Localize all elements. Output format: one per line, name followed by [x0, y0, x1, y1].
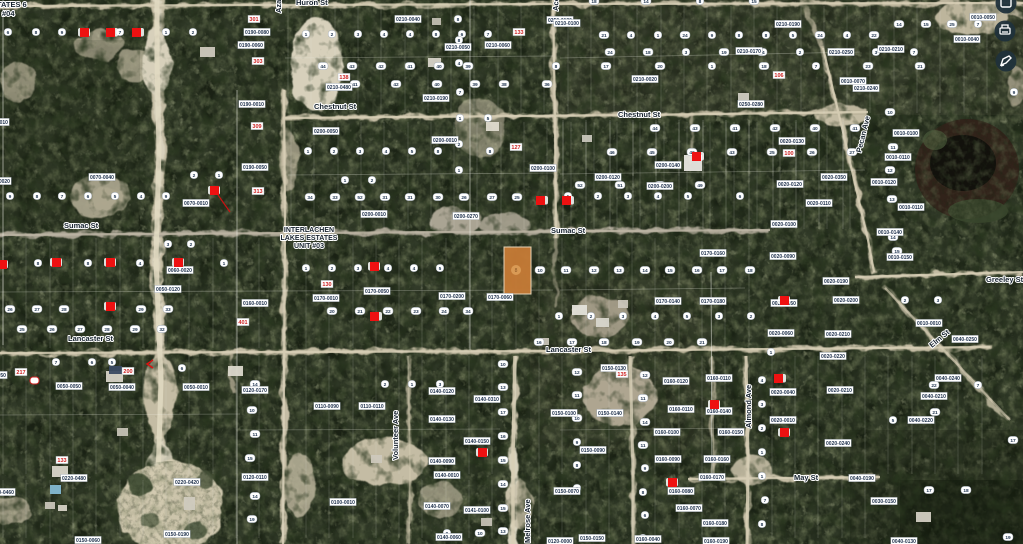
- svg-text:18: 18: [601, 340, 607, 346]
- svg-text:Almond Ave: Almond Ave: [744, 385, 753, 428]
- svg-text:0210-0190: 0210-0190: [776, 22, 800, 28]
- svg-text:Volunteer Ave: Volunteer Ave: [391, 411, 400, 460]
- svg-text:0170-0050: 0170-0050: [365, 289, 389, 295]
- svg-text:0120-0110: 0120-0110: [243, 475, 267, 481]
- svg-text:5: 5: [111, 360, 114, 366]
- svg-text:0210-0050: 0210-0050: [446, 45, 470, 51]
- svg-text:0040-0220: 0040-0220: [909, 418, 933, 424]
- svg-text:0160-0190: 0160-0190: [704, 539, 728, 544]
- svg-text:2: 2: [192, 30, 195, 36]
- svg-text:5: 5: [439, 266, 442, 272]
- svg-text:6: 6: [739, 194, 742, 200]
- svg-text:Chestnut St: Chestnut St: [618, 110, 661, 119]
- svg-text:Sumac St: Sumac St: [551, 226, 586, 235]
- svg-text:11: 11: [563, 268, 568, 274]
- svg-text:7: 7: [764, 498, 767, 504]
- svg-text:0040-0240: 0040-0240: [936, 376, 960, 382]
- svg-text:4: 4: [140, 194, 143, 200]
- svg-text:Acorn Av: Acorn Av: [551, 0, 561, 11]
- svg-text:1: 1: [558, 314, 561, 320]
- svg-text:27: 27: [34, 307, 40, 313]
- svg-text:5: 5: [411, 149, 414, 155]
- svg-text:5: 5: [792, 33, 795, 39]
- svg-text:3: 3: [761, 402, 764, 408]
- svg-text:8: 8: [761, 522, 764, 528]
- svg-text:313: 313: [253, 189, 262, 195]
- svg-text:0020-0210: 0020-0210: [826, 332, 850, 338]
- svg-text:2: 2: [193, 173, 196, 179]
- svg-text:25: 25: [769, 150, 775, 156]
- svg-text:200: 200: [123, 369, 132, 375]
- svg-text:38: 38: [501, 82, 507, 88]
- svg-text:4: 4: [409, 32, 412, 38]
- svg-text:106: 106: [774, 73, 783, 79]
- svg-text:8: 8: [87, 261, 90, 267]
- svg-text:1: 1: [657, 33, 660, 39]
- svg-text:0050-0050: 0050-0050: [0, 373, 6, 379]
- svg-text:13: 13: [500, 385, 506, 391]
- svg-text:0160-0150: 0160-0150: [719, 430, 743, 436]
- svg-text:8: 8: [457, 17, 460, 23]
- svg-text:Melrose Ave: Melrose Ave: [523, 499, 532, 543]
- svg-text:17: 17: [719, 268, 725, 274]
- svg-text:0010-0070: 0010-0070: [841, 79, 865, 85]
- svg-text:0200-0200: 0200-0200: [648, 184, 672, 190]
- svg-text:4: 4: [630, 33, 633, 39]
- svg-text:4: 4: [761, 378, 764, 384]
- svg-text:0020-0210: 0020-0210: [828, 388, 852, 394]
- svg-text:0150-0060: 0150-0060: [76, 538, 100, 544]
- svg-text:5: 5: [892, 418, 895, 424]
- svg-text:0070-0040: 0070-0040: [90, 175, 114, 181]
- svg-text:0070-0010: 0070-0010: [184, 201, 208, 207]
- svg-text:1: 1: [459, 116, 462, 122]
- svg-text:23: 23: [413, 309, 419, 315]
- svg-text:21: 21: [601, 33, 607, 39]
- svg-text:26: 26: [7, 307, 13, 313]
- svg-text:32: 32: [159, 327, 165, 333]
- svg-text:0210-0250: 0210-0250: [829, 50, 853, 56]
- svg-text:7: 7: [119, 30, 122, 36]
- svg-text:24: 24: [817, 33, 823, 39]
- svg-text:0100-0010: 0100-0010: [0, 120, 8, 126]
- svg-text:8: 8: [435, 32, 438, 38]
- svg-text:18: 18: [645, 50, 651, 56]
- svg-text:24: 24: [682, 33, 688, 39]
- svg-text:Huron St: Huron St: [296, 0, 328, 7]
- svg-text:0020-0350: 0020-0350: [822, 175, 846, 181]
- svg-text:STATES 6: STATES 6: [0, 0, 27, 9]
- svg-text:2: 2: [904, 298, 907, 304]
- svg-text:0150-0150: 0150-0150: [580, 536, 604, 542]
- svg-text:0050-0120: 0050-0120: [156, 287, 180, 293]
- svg-text:0210-0020: 0210-0020: [633, 77, 657, 83]
- svg-text:2: 2: [190, 242, 193, 248]
- svg-text:Greeley St: Greeley St: [986, 275, 1023, 284]
- svg-text:1: 1: [223, 261, 226, 267]
- svg-text:138: 138: [339, 75, 348, 81]
- svg-text:0200-0100: 0200-0100: [531, 166, 555, 172]
- svg-text:51: 51: [617, 183, 623, 189]
- svg-text:0010-0110: 0010-0110: [886, 155, 910, 161]
- svg-text:2: 2: [371, 178, 374, 184]
- svg-text:42: 42: [378, 64, 384, 70]
- svg-text:1: 1: [711, 64, 714, 70]
- svg-text:0210-0170: 0210-0170: [737, 49, 761, 55]
- svg-text:41: 41: [352, 82, 358, 88]
- svg-text:16: 16: [500, 434, 506, 440]
- svg-text:133: 133: [514, 30, 523, 36]
- svg-text:301: 301: [249, 17, 258, 23]
- svg-text:0010-0100: 0010-0100: [894, 131, 918, 137]
- svg-text:0040-0210: 0040-0210: [922, 394, 946, 400]
- svg-text:Azalea Av: Azalea Av: [274, 0, 283, 13]
- svg-text:13: 13: [500, 529, 506, 535]
- svg-text:0140-0070: 0140-0070: [425, 504, 449, 510]
- svg-text:0150-0140: 0150-0140: [598, 411, 622, 417]
- svg-text:0040-0250: 0040-0250: [953, 337, 977, 343]
- svg-text:15: 15: [923, 22, 929, 28]
- svg-text:0160-0070: 0160-0070: [677, 506, 701, 512]
- svg-text:5: 5: [487, 116, 490, 122]
- svg-text:1: 1: [411, 382, 414, 388]
- svg-text:29: 29: [138, 307, 144, 313]
- svg-text:12: 12: [887, 168, 893, 174]
- svg-text:0010-0150: 0010-0150: [888, 255, 912, 261]
- svg-text:15: 15: [500, 458, 506, 464]
- svg-text:UNIT #03: UNIT #03: [294, 243, 324, 250]
- svg-text:26: 26: [49, 327, 55, 333]
- svg-text:17: 17: [926, 488, 932, 494]
- svg-text:0140-0090: 0140-0090: [430, 459, 454, 465]
- svg-text:43: 43: [692, 126, 698, 132]
- svg-text:29: 29: [132, 327, 138, 333]
- svg-text:2: 2: [597, 194, 600, 200]
- svg-text:0210-0190: 0210-0190: [424, 96, 448, 102]
- svg-text:21: 21: [699, 340, 705, 346]
- svg-text:5: 5: [686, 314, 689, 320]
- svg-text:31: 31: [407, 195, 413, 201]
- svg-text:1: 1: [307, 149, 310, 155]
- svg-text:20: 20: [666, 340, 672, 346]
- svg-text:0170-0140: 0170-0140: [656, 299, 680, 305]
- svg-text:22: 22: [385, 309, 391, 315]
- svg-text:10: 10: [249, 408, 255, 414]
- svg-text:14: 14: [642, 420, 648, 426]
- svg-text:44: 44: [652, 126, 658, 132]
- svg-text:0010-0110: 0010-0110: [899, 205, 923, 211]
- svg-text:18: 18: [761, 64, 767, 70]
- svg-text:Lancaster St: Lancaster St: [68, 334, 114, 343]
- svg-text:0160-0110: 0160-0110: [669, 407, 693, 413]
- svg-text:0060-0020: 0060-0020: [168, 268, 192, 274]
- svg-text:1: 1: [344, 178, 347, 184]
- svg-text:100: 100: [784, 151, 793, 157]
- svg-text:0030-0150: 0030-0150: [872, 499, 896, 505]
- svg-text:8: 8: [515, 268, 518, 274]
- svg-text:22: 22: [931, 383, 937, 389]
- svg-text:0100-0010: 0100-0010: [331, 500, 355, 506]
- svg-text:9: 9: [165, 194, 168, 200]
- svg-text:8: 8: [458, 38, 461, 44]
- svg-text:0170-0060: 0170-0060: [488, 295, 512, 301]
- svg-text:11: 11: [574, 393, 579, 399]
- svg-text:10: 10: [500, 362, 506, 368]
- svg-text:41: 41: [732, 126, 738, 132]
- svg-text:6: 6: [181, 366, 184, 372]
- svg-text:2: 2: [750, 314, 753, 320]
- svg-text:3: 3: [627, 194, 630, 200]
- svg-text:13: 13: [616, 268, 622, 274]
- svg-text:40: 40: [436, 64, 442, 70]
- svg-text:1: 1: [165, 30, 168, 36]
- svg-text:9: 9: [61, 30, 64, 36]
- svg-text:0020-0200: 0020-0200: [834, 298, 858, 304]
- svg-text:3: 3: [439, 382, 442, 388]
- svg-text:8: 8: [36, 194, 39, 200]
- svg-text:40: 40: [812, 126, 818, 132]
- svg-text:2: 2: [331, 266, 334, 272]
- svg-text:3: 3: [357, 32, 360, 38]
- svg-text:34: 34: [307, 195, 313, 201]
- svg-text:0010-0050: 0010-0050: [971, 15, 995, 21]
- svg-text:49: 49: [697, 183, 703, 189]
- svg-text:8: 8: [489, 149, 492, 155]
- svg-text:0160-0080: 0160-0080: [669, 489, 693, 495]
- svg-text:22: 22: [871, 33, 877, 39]
- svg-text:0040-0130: 0040-0130: [892, 539, 916, 544]
- svg-text:9: 9: [711, 33, 714, 39]
- svg-text:41: 41: [852, 126, 858, 132]
- svg-text:8: 8: [555, 64, 558, 70]
- svg-text:13: 13: [889, 197, 895, 203]
- svg-text:4: 4: [383, 32, 386, 38]
- svg-text:42: 42: [393, 82, 399, 88]
- svg-text:7: 7: [61, 194, 64, 200]
- svg-text:0210-0100: 0210-0100: [555, 21, 579, 27]
- svg-text:4: 4: [458, 61, 461, 67]
- svg-text:27: 27: [489, 195, 495, 201]
- svg-text:2: 2: [333, 149, 336, 155]
- svg-text:18: 18: [747, 268, 753, 274]
- svg-text:0200-0120: 0200-0120: [596, 175, 620, 181]
- svg-text:5: 5: [687, 194, 690, 200]
- svg-text:0010-0040: 0010-0040: [955, 37, 979, 43]
- svg-text:2: 2: [799, 50, 802, 56]
- svg-text:41: 41: [407, 64, 413, 70]
- svg-text:0200-0010: 0200-0010: [362, 212, 386, 218]
- svg-text:2: 2: [761, 426, 764, 432]
- svg-text:0110-0090: 0110-0090: [315, 404, 339, 410]
- svg-text:0160-0010: 0160-0010: [243, 301, 267, 307]
- svg-text:15: 15: [247, 456, 253, 462]
- svg-text:0140-0060: 0140-0060: [437, 535, 461, 541]
- svg-text:0020-0100: 0020-0100: [772, 222, 796, 228]
- svg-text:0020-0060: 0020-0060: [769, 331, 793, 337]
- svg-text:0200-0140: 0200-0140: [656, 163, 680, 169]
- svg-text:23: 23: [865, 64, 871, 70]
- svg-text:8: 8: [642, 490, 645, 496]
- svg-text:LAKES ESTATES: LAKES ESTATES: [281, 235, 338, 242]
- svg-text:0210-0480: 0210-0480: [327, 85, 351, 91]
- svg-text:May St: May St: [794, 473, 819, 482]
- svg-text:3: 3: [357, 266, 360, 272]
- svg-text:18: 18: [591, 0, 597, 5]
- svg-text:4: 4: [385, 149, 388, 155]
- svg-text:0020-0090: 0020-0090: [771, 254, 795, 260]
- svg-text:39: 39: [472, 82, 478, 88]
- svg-text:0150-0090: 0150-0090: [581, 448, 605, 454]
- svg-text:24: 24: [607, 50, 613, 56]
- svg-text:17: 17: [500, 410, 506, 416]
- svg-text:4: 4: [413, 266, 416, 272]
- svg-text:0200-0270: 0200-0270: [454, 214, 478, 220]
- svg-text:0020-0110: 0020-0110: [807, 201, 831, 207]
- svg-text:1: 1: [305, 266, 308, 272]
- svg-text:52: 52: [577, 183, 583, 189]
- svg-text:1: 1: [761, 474, 764, 480]
- svg-text:7: 7: [913, 50, 916, 56]
- svg-text:6: 6: [87, 194, 90, 200]
- svg-text:28: 28: [61, 307, 67, 313]
- svg-text:7: 7: [487, 32, 490, 38]
- svg-text:401: 401: [238, 320, 247, 326]
- svg-text:28: 28: [104, 327, 110, 333]
- svg-text:4: 4: [846, 33, 849, 39]
- svg-text:25: 25: [514, 195, 520, 201]
- svg-text:8: 8: [699, 0, 702, 5]
- svg-text:19: 19: [721, 50, 727, 56]
- svg-text:2: 2: [331, 32, 334, 38]
- svg-text:217: 217: [16, 370, 25, 376]
- svg-text:0200-0010: 0200-0010: [433, 138, 457, 144]
- svg-text:0010-0120: 0010-0120: [872, 180, 896, 186]
- svg-text:0140-0150: 0140-0150: [465, 439, 489, 445]
- svg-text:16: 16: [536, 340, 542, 346]
- svg-text:0190-0060: 0190-0060: [239, 43, 263, 49]
- svg-text:4: 4: [657, 194, 660, 200]
- svg-text:6: 6: [91, 360, 94, 366]
- svg-text:44: 44: [320, 64, 326, 70]
- svg-text:45: 45: [649, 150, 655, 156]
- svg-text:0040-0190: 0040-0190: [850, 476, 874, 482]
- svg-text:42: 42: [772, 126, 778, 132]
- svg-text:0150-0100: 0150-0100: [552, 411, 576, 417]
- svg-text:34: 34: [465, 309, 471, 315]
- svg-text:3: 3: [685, 50, 688, 56]
- svg-text:10: 10: [887, 110, 893, 116]
- svg-text:0140-0010: 0140-0010: [435, 473, 459, 479]
- svg-text:24: 24: [441, 309, 447, 315]
- svg-text:0010-0010: 0010-0010: [917, 321, 941, 327]
- svg-text:19: 19: [634, 340, 640, 346]
- svg-text:12: 12: [642, 373, 648, 379]
- svg-text:43: 43: [349, 64, 355, 70]
- svg-text:8: 8: [576, 463, 579, 469]
- svg-text:INTERLACHEN: INTERLACHEN: [284, 227, 334, 234]
- svg-text:11: 11: [640, 396, 645, 402]
- svg-text:25: 25: [19, 327, 25, 333]
- svg-text:9: 9: [644, 466, 647, 472]
- svg-text:0020-0130: 0020-0130: [780, 139, 804, 145]
- svg-text:17: 17: [603, 64, 609, 70]
- svg-text:21: 21: [932, 410, 938, 416]
- svg-text:0210-0240: 0210-0240: [854, 86, 878, 92]
- svg-text:0020-0040: 0020-0040: [771, 390, 795, 396]
- svg-text:0220-0460: 0220-0460: [0, 490, 14, 496]
- svg-text:46: 46: [609, 150, 615, 156]
- svg-text:0160-0040: 0160-0040: [636, 537, 660, 543]
- svg-text:9: 9: [9, 194, 12, 200]
- svg-text:19: 19: [249, 517, 255, 523]
- svg-text:10: 10: [537, 268, 543, 274]
- svg-text:130: 130: [322, 282, 331, 288]
- svg-text:#04: #04: [2, 9, 15, 18]
- svg-text:8: 8: [765, 33, 768, 39]
- svg-text:0190-0080: 0190-0080: [245, 30, 269, 36]
- svg-text:4: 4: [654, 314, 657, 320]
- svg-text:0160-0120: 0160-0120: [664, 379, 688, 385]
- svg-text:20: 20: [329, 309, 335, 315]
- svg-text:25: 25: [949, 22, 955, 28]
- svg-text:0160-0110: 0160-0110: [707, 376, 731, 382]
- svg-text:7: 7: [55, 360, 58, 366]
- svg-text:0160-0090: 0160-0090: [656, 457, 680, 463]
- svg-text:0140-0120: 0140-0120: [430, 389, 454, 395]
- svg-text:6: 6: [7, 30, 10, 36]
- svg-text:0210-0040: 0210-0040: [396, 17, 420, 23]
- svg-text:6: 6: [644, 513, 647, 519]
- svg-text:1: 1: [770, 350, 773, 356]
- svg-text:0170-0180: 0170-0180: [701, 299, 725, 305]
- svg-text:27: 27: [77, 327, 83, 333]
- svg-text:33: 33: [332, 195, 338, 201]
- svg-text:11: 11: [640, 443, 645, 449]
- svg-text:21: 21: [917, 64, 923, 70]
- svg-text:11: 11: [890, 145, 895, 151]
- svg-text:2: 2: [590, 314, 593, 320]
- svg-text:303: 303: [253, 59, 262, 65]
- svg-text:12: 12: [591, 268, 597, 274]
- svg-text:0190-0010: 0190-0010: [240, 102, 264, 108]
- svg-text:3: 3: [875, 50, 878, 56]
- svg-text:31: 31: [382, 195, 388, 201]
- svg-text:0140-0310: 0140-0310: [475, 397, 499, 403]
- svg-text:19: 19: [1005, 535, 1011, 541]
- svg-text:2: 2: [384, 382, 387, 388]
- svg-text:135: 135: [617, 372, 626, 378]
- svg-text:7: 7: [459, 90, 462, 96]
- svg-text:43: 43: [729, 150, 735, 156]
- svg-text:0170-0010: 0170-0010: [314, 296, 338, 302]
- svg-text:0020-0190: 0020-0190: [824, 279, 848, 285]
- svg-text:16: 16: [694, 268, 700, 274]
- svg-text:0210-0060: 0210-0060: [486, 43, 510, 49]
- svg-text:0160-0100: 0160-0100: [655, 430, 679, 436]
- svg-text:4: 4: [387, 266, 390, 272]
- svg-text:14: 14: [896, 22, 902, 28]
- svg-text:9: 9: [1013, 90, 1016, 96]
- svg-text:3: 3: [167, 242, 170, 248]
- svg-text:0160-0180: 0160-0180: [703, 521, 727, 527]
- svg-text:7: 7: [977, 22, 980, 28]
- svg-text:0020-0120: 0020-0120: [778, 182, 802, 188]
- svg-text:3: 3: [937, 298, 940, 304]
- svg-text:18: 18: [963, 488, 969, 494]
- svg-text:1: 1: [305, 32, 308, 38]
- svg-text:8: 8: [35, 30, 38, 36]
- svg-text:Chestnut St: Chestnut St: [314, 102, 357, 111]
